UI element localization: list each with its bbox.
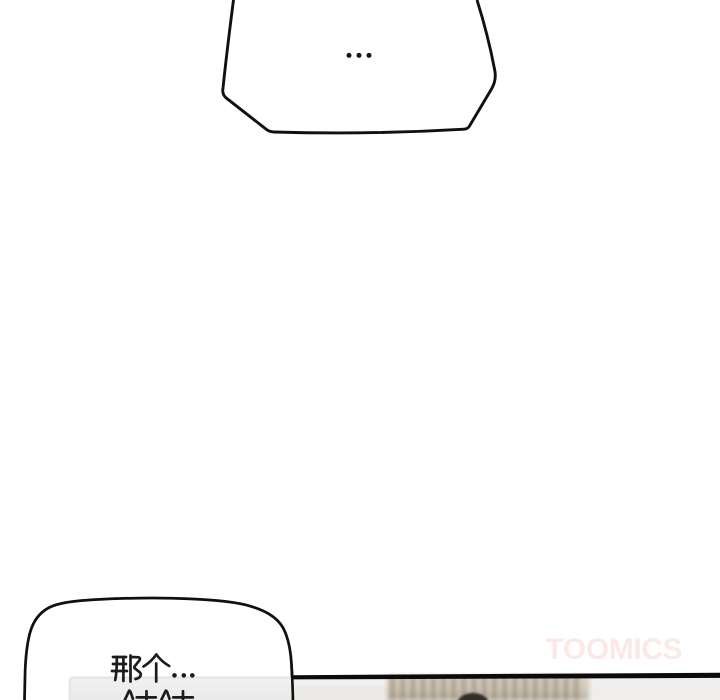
- svg-text:TOOMICS: TOOMICS: [546, 633, 683, 666]
